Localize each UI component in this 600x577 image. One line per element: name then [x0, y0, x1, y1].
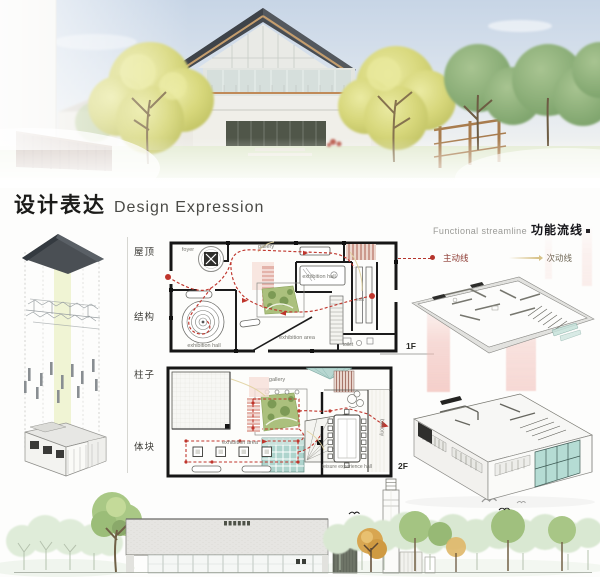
- room-label-exit: exit: [356, 298, 364, 303]
- room-label-exhibition-hall-lower: exhibition hall: [187, 344, 220, 350]
- room-label-foyer: foyer: [182, 248, 194, 254]
- room-label-balcony: balcony: [379, 419, 384, 436]
- axon-1f: [398, 378, 600, 510]
- room-label-gallery-2f: gallery: [269, 378, 285, 384]
- stair-top-right-2f: [334, 371, 354, 392]
- layer-label-structure: 结构: [134, 313, 155, 323]
- light-shaft: [54, 254, 71, 446]
- title-chinese: 设计表达: [14, 194, 106, 217]
- terrace-2f: [172, 372, 230, 429]
- room-label-toilet: toilet: [343, 343, 354, 348]
- room-label-leisure-hall: leisure experience hall: [322, 465, 372, 470]
- elevation-building: [126, 519, 328, 573]
- roof-layer: [22, 234, 104, 274]
- room-label-exhibition-area-1f: exhibition area: [279, 336, 315, 342]
- exploded-divider-line: [127, 237, 128, 473]
- page-title: 设计表达Design Expression: [14, 189, 264, 219]
- design-expression-board: 设计表达Design Expression Functional streaml…: [0, 0, 600, 577]
- caption-english: Functional streamline: [433, 226, 527, 236]
- foyer-elevator: [199, 247, 224, 272]
- room-label-exhibition-area-2f: exhibition area: [222, 441, 258, 447]
- layer-label-columns: 柱子: [134, 371, 155, 381]
- room-label-gallery-1f: gallery: [258, 245, 274, 251]
- hero-render: [0, 0, 600, 188]
- layer-label-massing: 体块: [134, 443, 155, 453]
- caption-chinese: 功能流线: [531, 223, 583, 237]
- massing-layer: [25, 422, 106, 476]
- room-label-exhibition-hall-upper: exhibition hall: [302, 275, 335, 281]
- title-english: Design Expression: [114, 199, 264, 216]
- layer-label-roof: 屋顶: [134, 248, 155, 258]
- long-table: [328, 410, 366, 468]
- streamline-caption: Functional streamline功能流线: [420, 221, 590, 239]
- axon-2f: [398, 258, 600, 370]
- exploded-axon: [0, 226, 160, 478]
